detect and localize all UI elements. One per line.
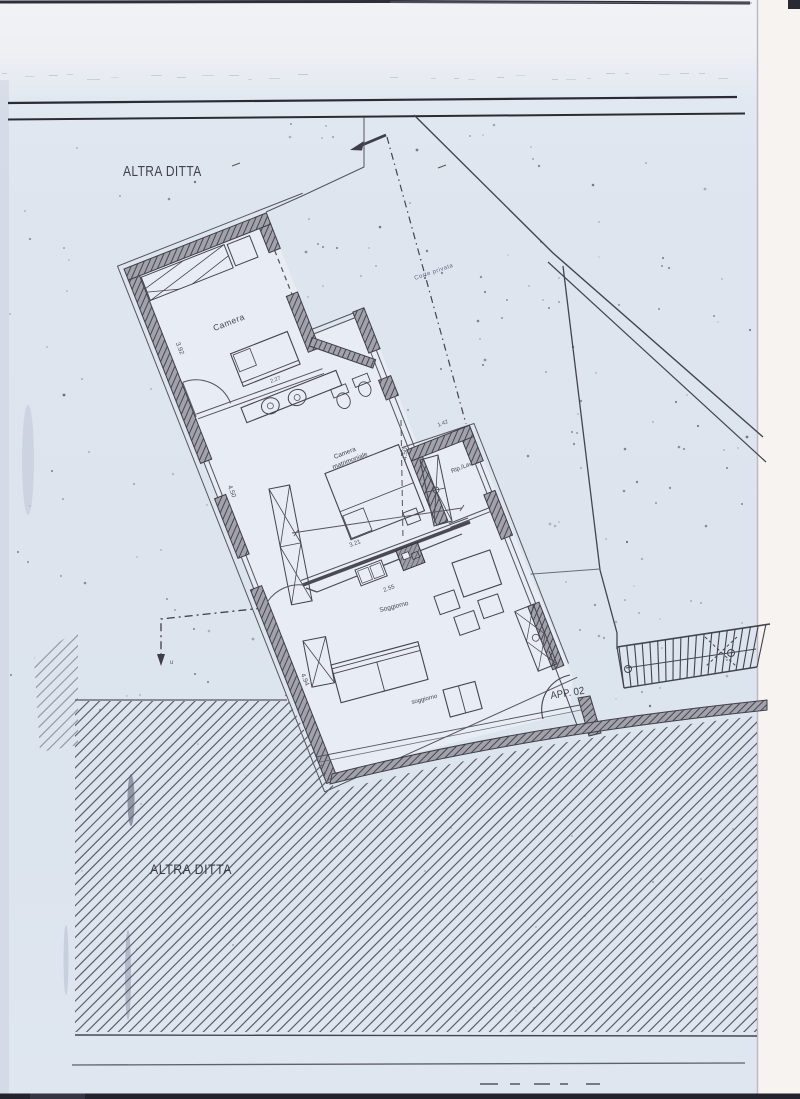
svg-text:u: u (170, 660, 173, 666)
svg-text:4.50: 4.50 (402, 447, 409, 460)
svg-text:ALTRA DITTA: ALTRA DITTA (123, 163, 202, 180)
svg-text:ALTRA DITTA: ALTRA DITTA (150, 861, 232, 877)
